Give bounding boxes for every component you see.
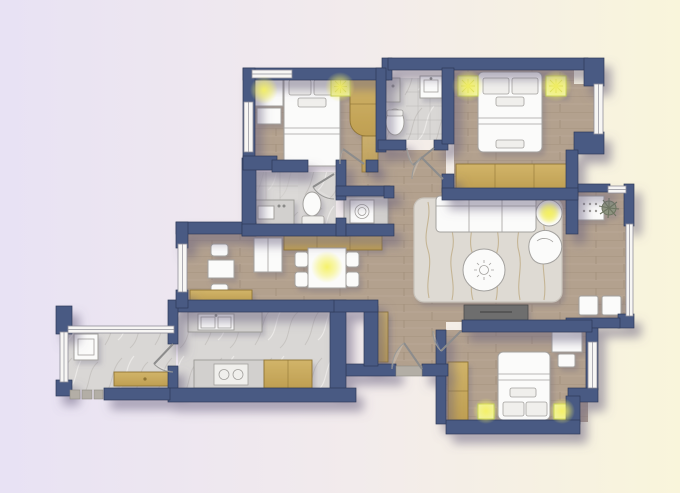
stool xyxy=(211,244,228,256)
lamp-glow xyxy=(325,72,355,102)
hall-table xyxy=(208,260,234,278)
bed-bench xyxy=(496,140,524,148)
pillow xyxy=(483,78,509,94)
dining-chair xyxy=(295,252,308,267)
accent-chair xyxy=(529,230,562,264)
pillow xyxy=(289,80,311,95)
coffee-table xyxy=(463,249,505,291)
window xyxy=(594,84,603,134)
seat-cushion xyxy=(579,296,598,315)
toilet xyxy=(303,192,321,216)
floor-plan xyxy=(0,0,680,493)
entry-threshold xyxy=(396,366,422,376)
lamp-glow xyxy=(250,76,278,104)
desk xyxy=(552,332,582,352)
window xyxy=(60,332,68,382)
window xyxy=(252,70,292,78)
desk-chair xyxy=(558,354,575,367)
balcony-table xyxy=(74,334,98,360)
seat-cushion xyxy=(602,296,621,315)
wardrobe xyxy=(456,164,574,190)
window xyxy=(626,224,633,316)
window xyxy=(178,244,187,292)
pillow xyxy=(526,402,547,416)
dresser xyxy=(257,108,281,124)
window xyxy=(608,186,626,193)
window xyxy=(588,342,597,388)
lamp-glow xyxy=(537,201,561,225)
washing-machine xyxy=(350,200,374,223)
sofa xyxy=(436,196,536,232)
lamp-glow xyxy=(549,398,575,424)
laundry-niche xyxy=(344,197,388,226)
dining-chair xyxy=(346,252,359,267)
window xyxy=(68,326,174,333)
window xyxy=(244,102,253,152)
dining-chair xyxy=(346,272,359,287)
lamp-glow xyxy=(473,398,499,424)
hall-cabinet xyxy=(378,312,388,362)
pillow xyxy=(512,78,538,94)
lamp-glow xyxy=(311,251,343,283)
pillow xyxy=(503,402,524,416)
lamp-glow xyxy=(540,70,572,102)
stone-tiles xyxy=(70,390,103,399)
lamp-glow xyxy=(452,70,484,102)
side-cabinet xyxy=(576,196,604,220)
dining-chair xyxy=(295,272,308,287)
bath-counter xyxy=(386,78,400,102)
sink xyxy=(258,206,274,219)
